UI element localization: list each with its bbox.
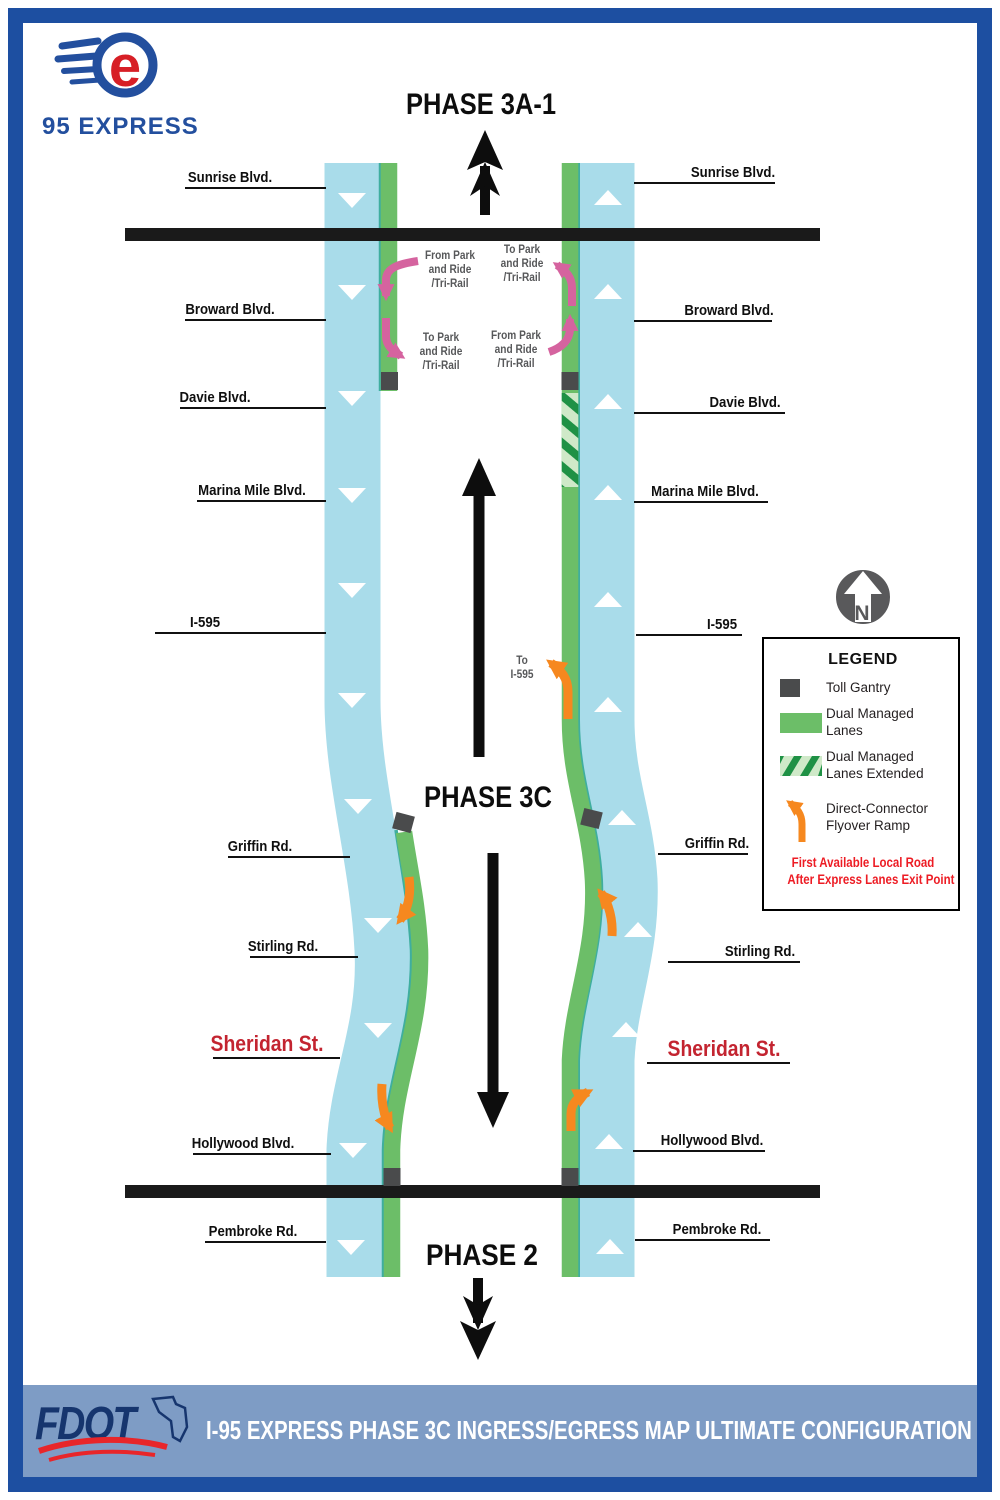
brand-name: 95 EXPRESS [42, 113, 220, 141]
phase-3c-down-arrow-icon [477, 853, 509, 1128]
phase-title-top: PHASE 3A-1 [406, 88, 556, 121]
brand-95express: e 95 EXPRESS [40, 28, 220, 141]
ramp-label-line: From Park [491, 329, 542, 342]
toll-gantry-icon [384, 1168, 401, 1186]
ramp-label-line: From Park [425, 249, 476, 262]
ramp-label-line: /Tri-Rail [431, 277, 468, 290]
phase-2-down-arrow-icon [460, 1278, 496, 1360]
street-label-highlight: Sheridan St. [668, 1037, 781, 1061]
ramp-label-line: and Ride [501, 257, 544, 270]
phase-divider-south [125, 1185, 820, 1198]
legend-item-label: Dual Managed Lanes [826, 706, 944, 740]
fdot-logo-icon: FDOT [35, 1391, 200, 1467]
legend-note-line: First Available Local Road [787, 854, 938, 872]
street-label: Pembroke Rd. [673, 1220, 762, 1237]
legend-item-label: Toll Gantry [826, 680, 944, 697]
north-arrow-icon: N [835, 569, 891, 625]
ramp-label-line: and Ride [420, 345, 463, 358]
sb-ingress-ramp-label: From Park and Ride /Tri-Rail [425, 249, 476, 290]
ramp-label-line: and Ride [429, 263, 472, 276]
street-label: I-595 [707, 615, 737, 632]
toll-gantry-icon [562, 1168, 579, 1186]
florida-outline-icon [153, 1397, 187, 1441]
street-label: Hollywood Blvd. [661, 1131, 764, 1148]
ramp-label-line: To Park [504, 243, 541, 256]
northbound-managed-lane-extended-segment [562, 393, 579, 487]
nb-egress-ramp-label: To Park and Ride /Tri-Rail [501, 243, 544, 284]
phase-title-bottom: PHASE 2 [426, 1239, 538, 1272]
street-label: Stirling Rd. [725, 942, 795, 959]
legend-item-dual-managed-lanes: Dual Managed Lanes [774, 706, 952, 740]
street-label: Pembroke Rd. [209, 1222, 298, 1239]
ramp-label-line: /Tri-Rail [497, 357, 534, 370]
fdot-logo: FDOT [35, 1391, 200, 1472]
sb-egress-ramp-label: To Park and Ride /Tri-Rail [420, 331, 463, 372]
footer-title: I-95 EXPRESS PHASE 3C INGRESS/EGRESS MAP… [206, 1417, 972, 1446]
phase-flow-arrows [460, 130, 509, 1360]
toll-gantry-icon [562, 372, 579, 390]
legend-item-flyover-ramp: Direct-Connector Flyover Ramp [774, 792, 952, 844]
legend-title: LEGEND [774, 651, 952, 669]
ramp-label-line: To Park [423, 331, 460, 344]
legend-box: LEGEND Toll Gantry Dual Managed Lanes [762, 637, 960, 911]
street-label: Broward Blvd. [684, 301, 773, 318]
street-label-highlight: Sheridan St. [211, 1032, 324, 1056]
legend-note-line: After Express Lanes Exit Point [787, 871, 938, 889]
flyover-ramp-swatch-icon [780, 792, 816, 844]
left-street-labels: Sunrise Blvd. Broward Blvd. Davie Blvd. … [179, 168, 323, 1239]
ramp-label-line: /Tri-Rail [422, 359, 459, 372]
toll-gantry-icon [381, 372, 398, 390]
dual-managed-lanes-extended-swatch-icon [780, 756, 822, 776]
ramp-label-line: /Tri-Rail [503, 271, 540, 284]
ramp-label-line: I-595 [510, 668, 533, 681]
toll-gantry-swatch-icon [780, 679, 800, 697]
to-i595-label: To I-595 [510, 654, 533, 681]
street-label: I-595 [190, 613, 220, 630]
street-label: Sunrise Blvd. [691, 163, 775, 180]
phase-title-middle: PHASE 3C [424, 781, 552, 814]
nb-ingress-ramp-label: From Park and Ride /Tri-Rail [491, 329, 542, 370]
street-label: Griffin Rd. [685, 834, 749, 851]
street-label: Griffin Rd. [228, 837, 292, 854]
legend-item-toll-gantry: Toll Gantry [774, 679, 952, 697]
legend-note: First Available Local Road After Express… [787, 854, 938, 889]
phase-3a1-up-arrow-icon [467, 130, 503, 215]
fdot-swoosh-icon [49, 1451, 155, 1459]
ramp-label-line: To [516, 654, 528, 667]
95express-logo-icon: e [40, 28, 200, 106]
southbound-general-lanes [353, 163, 383, 1277]
brand-letter: e [109, 34, 141, 99]
north-letter: N [854, 602, 869, 625]
street-label: Marina Mile Blvd. [198, 481, 306, 498]
northbound-general-lanes [607, 163, 630, 1277]
street-label: Sunrise Blvd. [188, 168, 272, 185]
street-label: Stirling Rd. [248, 937, 318, 954]
legend-item-dual-managed-lanes-extended: Dual Managed Lanes Extended [774, 749, 952, 783]
street-label: Broward Blvd. [185, 300, 274, 317]
map-page: Sunrise Blvd. Broward Blvd. Davie Blvd. … [0, 0, 1000, 1500]
park-ride-ramp-arrows [386, 261, 572, 356]
footer-bar: FDOT I-95 EXPRESS PHASE 3C INGRESS/EGRES… [23, 1385, 977, 1477]
street-label: Davie Blvd. [709, 393, 780, 410]
legend-item-label: Direct-Connector Flyover Ramp [826, 801, 944, 835]
street-label: Hollywood Blvd. [192, 1134, 295, 1151]
to-i595-flyover-arrow-icon [551, 663, 568, 719]
phase-divider-north [125, 228, 820, 241]
legend-item-label: Dual Managed Lanes Extended [826, 749, 944, 783]
dual-managed-lanes-swatch-icon [780, 713, 822, 733]
ramp-label-line: and Ride [495, 343, 538, 356]
phase-3c-up-arrow-icon [462, 458, 496, 757]
street-label: Marina Mile Blvd. [651, 482, 759, 499]
street-label: Davie Blvd. [179, 388, 250, 405]
